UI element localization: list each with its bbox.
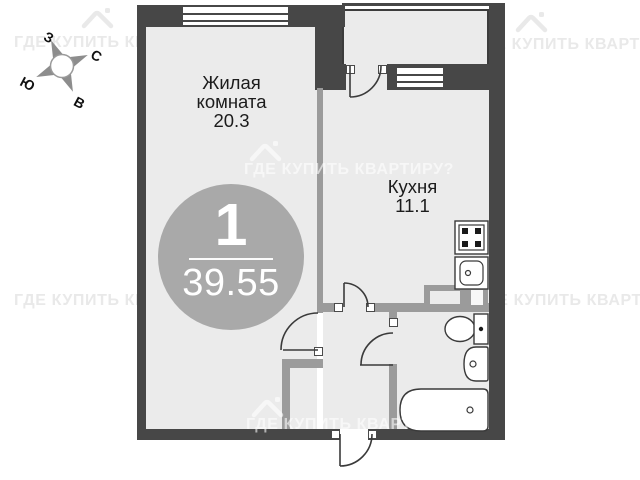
house-watermark-icon	[80, 6, 116, 30]
vent-shaft	[424, 285, 466, 310]
balcony-railing	[342, 3, 489, 6]
house-watermark-icon	[514, 10, 550, 34]
door-jamb	[389, 318, 398, 327]
room-name: Жилая	[146, 73, 317, 92]
door-jamb	[366, 303, 375, 312]
room-name: комната	[146, 92, 317, 111]
total-area: 39.55	[182, 262, 280, 304]
balcony	[342, 9, 489, 66]
partition-living-kitchen	[317, 88, 323, 313]
door-jamb	[314, 347, 323, 356]
wall-right	[489, 3, 505, 440]
wall-living-kitchen-pier	[315, 5, 342, 90]
rooms-count: 1	[215, 195, 248, 255]
room-name: Кухня	[340, 177, 485, 196]
kitchen-label: Кухня 11.1	[340, 177, 485, 215]
living-room-label: Жилая комната 20.3	[146, 73, 317, 130]
house-watermark-icon	[248, 139, 284, 163]
vent-shaft	[466, 285, 488, 310]
door-jamb	[334, 303, 343, 312]
door-jamb	[346, 65, 355, 74]
kitchen-window	[397, 66, 443, 89]
kitchen-door-opening	[343, 303, 366, 312]
floorplan: ГДЕ КУПИТЬ КВАРТИРУ? ГДЕ КУПИТЬ КВАРТИРУ…	[0, 0, 640, 480]
compass-south: Ю	[17, 73, 37, 94]
watermark-text: ГДЕ КУПИТЬ КВАРТИРУ?	[244, 161, 454, 178]
living-room-window	[183, 5, 288, 27]
wall-left	[137, 5, 146, 440]
door-jamb	[378, 65, 387, 74]
watermark: ГДЕ КУПИТЬ КВАРТИРУ?	[244, 161, 454, 179]
area-badge: 1 39.55	[158, 184, 304, 330]
watermark: ГДЕ КУПИТЬ КВАРТИРУ?	[246, 416, 456, 434]
badge-divider	[189, 258, 273, 260]
room-area: 20.3	[146, 111, 317, 130]
house-watermark-icon	[250, 395, 286, 419]
room-area: 11.1	[340, 196, 485, 215]
compass-east: В	[71, 93, 87, 112]
kitchen-hall-bath-floor	[323, 90, 489, 429]
